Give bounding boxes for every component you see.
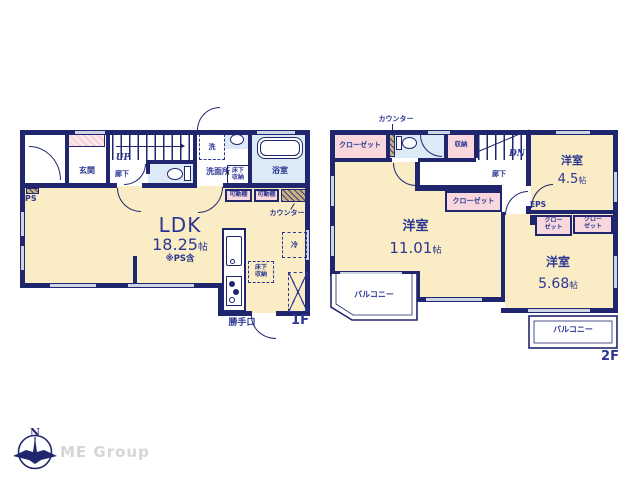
wall xyxy=(415,185,502,191)
wall xyxy=(133,256,137,283)
balcony-right-label: バルコニー xyxy=(536,325,610,334)
hallway-label: 廊下 xyxy=(110,170,134,178)
closet-small-2-label: クロー ゼット xyxy=(573,217,613,231)
room-1101-size-value: 11.01 xyxy=(389,239,432,257)
room-45-size-label: 4.5帖 xyxy=(542,173,602,188)
floor2-label: 2F xyxy=(598,350,622,365)
window xyxy=(330,226,335,256)
floor1-plan: 玄関 UP 廊下 洗 洗面所 床下 収納 浴室 可動棚 可動棚 カウンター PS… xyxy=(20,128,312,344)
closet-small-2-l2: ゼット xyxy=(573,224,613,231)
wall xyxy=(106,130,110,187)
counter-hatch xyxy=(281,189,307,202)
wall xyxy=(146,160,197,164)
room-45-size-unit: 帖 xyxy=(578,176,586,185)
room-45-size-value: 4.5 xyxy=(558,172,579,187)
wall xyxy=(501,212,505,300)
closet-small-1-l2: ゼット xyxy=(535,225,572,232)
faucet-icon xyxy=(230,259,235,264)
pantry-space xyxy=(288,272,308,312)
window xyxy=(50,283,96,288)
window xyxy=(613,256,618,288)
room-568-size-value: 5.68 xyxy=(538,276,569,292)
wall xyxy=(526,210,618,214)
room-45-label: 洋室 xyxy=(542,155,602,168)
up-label: UP xyxy=(112,153,134,163)
window xyxy=(20,246,25,270)
stairs-arrow-line xyxy=(116,146,180,147)
entrance-label: 玄関 xyxy=(67,166,107,175)
window xyxy=(613,172,618,202)
window xyxy=(20,212,25,236)
window xyxy=(257,130,295,135)
washer-label: 洗 xyxy=(199,143,225,151)
wall xyxy=(330,158,392,162)
k-underfloor-l2: 収納 xyxy=(248,272,274,279)
eps-label: EPS xyxy=(530,201,554,210)
company-name: ME Group xyxy=(60,443,150,461)
room-568-door-arc xyxy=(505,191,528,215)
underfloor-l2: 収納 xyxy=(227,175,249,182)
closet-mid-label: クローゼット xyxy=(446,197,501,205)
counter-label: カウンター xyxy=(264,209,310,217)
window xyxy=(330,176,335,206)
window xyxy=(75,130,105,135)
room-568-size-label: 5.68帖 xyxy=(523,276,593,292)
closet-small-1-label: クロー ゼット xyxy=(535,218,572,232)
ps-label: PS xyxy=(25,194,43,203)
floorplan-canvas: 玄関 UP 廊下 洗 洗面所 床下 収納 浴室 可動棚 可動棚 カウンター PS… xyxy=(0,0,640,480)
wall xyxy=(142,183,197,188)
room-1101-size-label: 11.01帖 xyxy=(373,240,458,257)
toilet-tank-icon xyxy=(184,166,191,181)
vanity-sink-icon xyxy=(230,134,244,145)
storage-label: 収納 xyxy=(448,141,474,148)
balcony-left-label: バルコニー xyxy=(338,290,410,299)
counter-pointer-line-2f xyxy=(392,124,393,130)
burner-icon xyxy=(229,281,235,287)
window xyxy=(556,130,590,135)
entrance-door-arc xyxy=(29,146,61,180)
fridge-label: 冷 xyxy=(282,241,307,249)
floor1-label: 1F xyxy=(288,314,312,329)
exterior-door-arc xyxy=(197,107,220,130)
burner-icon xyxy=(233,289,239,295)
wall xyxy=(65,130,69,187)
ldk-size-label: 18.25帖 xyxy=(128,236,232,254)
window xyxy=(528,308,590,313)
ldk-size-unit: 帖 xyxy=(198,242,208,253)
room-1101-label: 洋室 xyxy=(383,220,448,235)
dn-label: DN xyxy=(506,149,528,159)
counter-label-2f: カウンター xyxy=(370,115,422,123)
me-group-logo: N ME Group xyxy=(12,423,212,475)
closet-large-label: クローゼット xyxy=(332,141,388,149)
wall xyxy=(146,164,150,174)
window xyxy=(128,283,194,288)
stairs-arrow-head xyxy=(180,143,185,149)
room-1101-size-unit: 帖 xyxy=(432,245,441,256)
burner-icon xyxy=(229,297,235,303)
back-door-label: 勝手口 xyxy=(220,318,264,328)
underfloor-storage-label: 床下 収納 xyxy=(227,168,249,182)
window xyxy=(426,297,482,302)
hallway-label-2f: 廊下 xyxy=(486,170,512,178)
compass-icon: N xyxy=(12,423,60,473)
kitchen-underfloor-label: 床下 収納 xyxy=(248,265,274,279)
movable-shelf-1-label: 可動棚 xyxy=(225,192,252,199)
room-1101-c xyxy=(418,271,501,297)
movable-shelf-2-label: 可動棚 xyxy=(254,192,279,199)
toilet-bowl-icon-2f xyxy=(402,137,417,149)
ldk-label: LDK xyxy=(140,214,220,237)
floor2-plan: カウンター クローゼット 収納 DN 廊下 洋室 4.5帖 EPS クロー ゼッ… xyxy=(330,128,618,370)
bird-silhouette xyxy=(13,438,57,464)
bathroom-label: 浴室 xyxy=(258,166,302,175)
wall xyxy=(418,158,476,162)
room-568-label: 洋室 xyxy=(526,256,590,270)
ldk-size-value: 18.25 xyxy=(152,235,198,254)
bathtub-inner xyxy=(260,140,300,156)
room-568-size-unit: 帖 xyxy=(569,281,578,291)
ldk-note-label: ※PS含 xyxy=(148,255,212,265)
toilet-bowl-icon xyxy=(167,168,183,180)
